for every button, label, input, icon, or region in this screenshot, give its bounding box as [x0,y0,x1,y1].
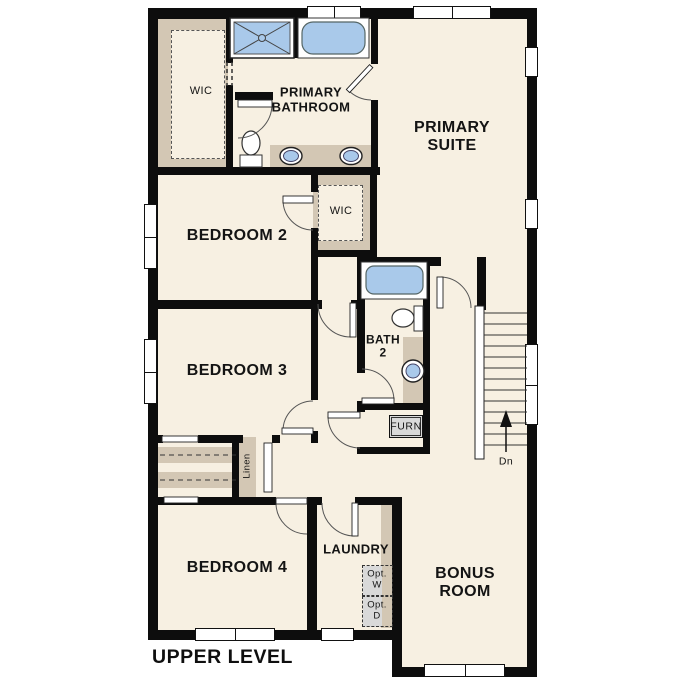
bedroom-2-label: BEDROOM 2 [187,227,288,245]
linen-label: Linen [241,453,252,478]
level-title: UPPER LEVEL [152,646,293,669]
stairs-direction-arrow [500,410,512,452]
optional-dryer-label: Opt. D [367,600,387,623]
primary-wic-label: WIC [190,85,213,97]
bedroom-4-label: BEDROOM 4 [187,559,288,577]
door-arc [362,369,394,401]
door-arc [283,200,313,230]
optional-washer-label: Opt. W [367,569,387,592]
bathtub2-icon [361,262,427,299]
furnace-label: FURN [390,421,422,434]
toilet-icon [392,306,423,331]
shower-icon [230,18,294,58]
door-leaf [238,100,272,107]
door-leaf [362,398,394,404]
linen-door [264,443,272,492]
door-arc [276,503,307,534]
sink-icon [280,148,362,165]
door-arc [328,416,360,448]
door-arc [441,277,471,308]
bath-2-label: BATH 2 [366,334,400,361]
door-leaves [162,65,443,536]
bedroom-3-label: BEDROOM 3 [187,362,288,380]
door-leaf [282,428,313,434]
primary-bathroom-label: PRIMARY BATHROOM [272,85,351,114]
closet-bypass-door [164,497,198,503]
hall-wic-label: WIC [330,205,353,217]
bonus-room-label: BONUS ROOM [435,565,495,601]
laundry-label: LAUNDRY [323,543,389,558]
door-leaf [283,196,313,203]
primary-suite-label: PRIMARY SUITE [414,119,490,155]
sink-icon [402,360,424,382]
door-arc [283,401,313,431]
bathtub-icon [298,18,369,58]
closet-bypass-door [162,436,198,442]
door-leaf [352,503,358,536]
door-leaf [276,498,307,504]
door-arc [318,304,351,337]
toilet-icon [240,131,262,167]
stairs [475,306,527,459]
closet-rod-dashes [160,455,236,480]
floor-plan: WIC PRIMARY BATHROOM PRIMARY SUITE BEDRO… [0,0,687,687]
cased-opening-dashes [227,62,232,86]
door-leaf [328,412,360,418]
door-arc [348,90,371,100]
door-arc [322,503,355,536]
door-leaf [437,277,443,308]
door-leaf [350,303,356,337]
stairs-dn-label: Dn [499,456,513,469]
